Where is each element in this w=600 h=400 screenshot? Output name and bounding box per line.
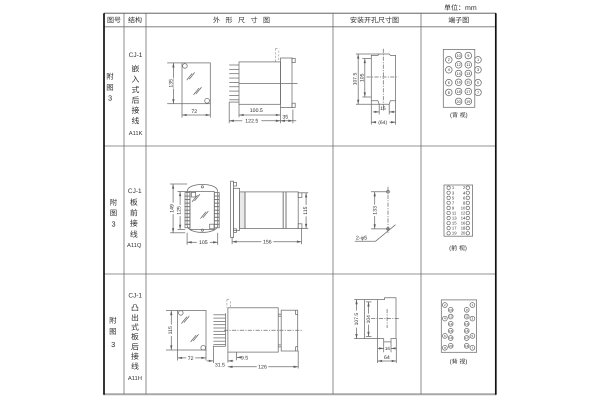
svg-text:19: 19 [452,231,457,236]
svg-text:2-φ5: 2-φ5 [356,235,367,241]
svg-text:图: 图 [110,209,117,218]
svg-text:72: 72 [191,109,197,115]
svg-text:105: 105 [199,240,208,246]
svg-text:3: 3 [111,220,115,229]
svg-text:9.5: 9.5 [241,355,248,361]
svg-text:接: 接 [130,219,138,228]
svg-text:3: 3 [472,317,474,321]
svg-text:17: 17 [466,90,470,94]
svg-text:107.5: 107.5 [352,73,358,86]
svg-text:嵌: 嵌 [131,65,139,74]
svg-text:115: 115 [168,326,174,334]
svg-text:20: 20 [461,231,466,236]
svg-text:附: 附 [106,72,114,81]
svg-text:5: 5 [472,334,474,338]
svg-text:107.5: 107.5 [354,313,360,326]
svg-text:后: 后 [131,96,139,105]
svg-text:13: 13 [466,72,470,76]
svg-text:12: 12 [449,315,453,319]
svg-text:14: 14 [456,72,460,76]
svg-text:104: 104 [366,315,372,324]
svg-text:板: 板 [131,333,139,342]
svg-text:1: 1 [472,303,474,307]
svg-text:3: 3 [108,94,112,103]
svg-text:CJ-1: CJ-1 [128,292,142,299]
svg-text:A11Q: A11Q [127,242,142,249]
svg-text:126: 126 [258,365,267,371]
svg-text:72: 72 [188,356,194,362]
svg-text:18: 18 [456,90,460,94]
svg-text:105: 105 [359,73,365,82]
svg-text:11: 11 [466,63,470,67]
svg-text:20: 20 [456,100,460,104]
svg-text:附: 附 [109,316,117,325]
svg-text:12: 12 [456,63,460,67]
svg-text:19: 19 [466,100,470,104]
svg-text:7: 7 [472,346,474,350]
svg-text:附: 附 [110,198,118,207]
svg-text:式: 式 [131,323,139,332]
svg-text:10: 10 [456,54,460,58]
svg-text:18: 18 [449,336,453,340]
svg-text:入: 入 [131,75,139,84]
svg-text:(背 视): (背 视) [450,111,468,119]
svg-text:20: 20 [449,344,453,348]
svg-text:115: 115 [303,206,309,214]
svg-text:6: 6 [444,334,446,338]
svg-text:156: 156 [263,240,272,246]
svg-text:16: 16 [385,346,391,351]
svg-text:5: 5 [477,81,479,85]
svg-text:图号: 图号 [107,17,121,25]
svg-text:后: 后 [131,342,139,351]
svg-text:图: 图 [109,327,116,336]
svg-text:安装开孔尺寸图: 安装开孔尺寸图 [350,17,399,25]
svg-text:64: 64 [384,355,390,361]
svg-text:端子图: 端子图 [448,17,469,25]
svg-text:出: 出 [131,313,139,322]
svg-text:17: 17 [465,336,469,340]
svg-text:9: 9 [467,54,469,58]
svg-text:15: 15 [466,81,470,85]
svg-text:结构: 结构 [128,17,142,25]
svg-text:板: 板 [130,198,138,207]
svg-text:125: 125 [176,206,182,215]
svg-text:4: 4 [448,68,450,72]
svg-text:接: 接 [131,352,139,361]
svg-text:单位：mm: 单位：mm [444,4,477,12]
svg-text:9: 9 [466,308,468,312]
svg-text:1: 1 [477,58,479,62]
svg-text:CJ-1: CJ-1 [128,188,142,195]
svg-text:线: 线 [130,230,138,239]
svg-text:14: 14 [449,322,453,326]
svg-text:7: 7 [477,91,479,95]
svg-text:(前 视): (前 视) [449,244,467,252]
svg-text:CJ-1: CJ-1 [129,52,143,59]
svg-text:31.5: 31.5 [215,362,225,368]
svg-text:线: 线 [131,362,139,371]
svg-text:接: 接 [131,106,139,115]
svg-text:8: 8 [448,91,450,95]
svg-text:8: 8 [444,346,446,350]
svg-text:A11K: A11K [129,131,143,137]
svg-text:(背 视): (背 视) [450,358,468,366]
svg-text:式: 式 [131,85,139,94]
svg-text:A11H: A11H [128,376,142,382]
svg-text:13: 13 [465,322,469,326]
svg-text:线: 线 [131,116,139,125]
svg-text:35: 35 [282,114,288,120]
svg-text:3: 3 [111,340,115,349]
svg-text:前: 前 [130,209,138,218]
svg-text:19: 19 [465,344,469,348]
svg-text:2: 2 [444,303,446,307]
svg-text:3: 3 [477,68,479,72]
svg-text:15: 15 [465,329,469,333]
svg-text:122.5: 122.5 [245,119,258,125]
svg-text:11: 11 [465,315,468,319]
svg-text:图: 图 [106,83,113,92]
svg-text:16: 16 [456,81,460,85]
svg-text:2: 2 [448,58,450,62]
svg-text:10: 10 [449,308,453,312]
svg-text:(64): (64) [378,120,387,126]
svg-text:6: 6 [448,81,450,85]
svg-text:凸: 凸 [131,304,139,313]
svg-text:135: 135 [168,79,174,88]
svg-text:133: 133 [372,206,378,215]
svg-text:4: 4 [444,317,446,321]
svg-text:16: 16 [449,329,453,333]
svg-text:16: 16 [380,106,386,112]
svg-text:149: 149 [169,204,175,213]
svg-text:100.5: 100.5 [250,108,263,114]
